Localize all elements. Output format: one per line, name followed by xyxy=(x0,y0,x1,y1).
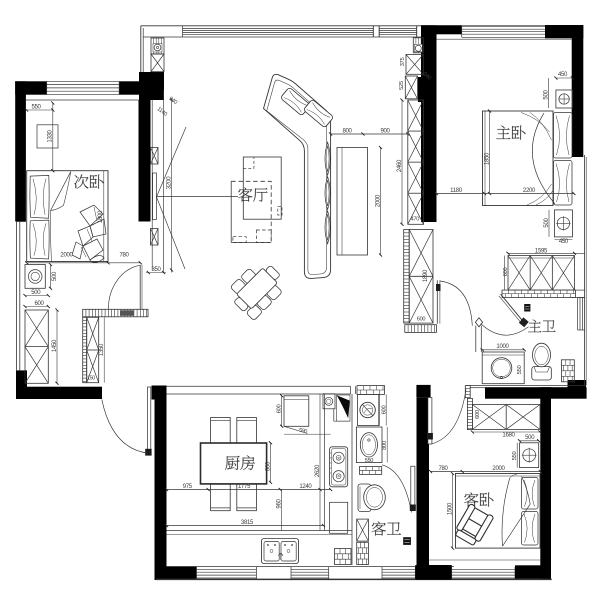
svg-text:1680: 1680 xyxy=(502,432,515,438)
svg-text:500: 500 xyxy=(544,217,550,227)
svg-text:150: 150 xyxy=(87,375,95,381)
svg-text:1240: 1240 xyxy=(299,484,312,490)
svg-text:1330: 1330 xyxy=(48,129,54,142)
svg-text:1500: 1500 xyxy=(447,502,453,515)
svg-text:3200: 3200 xyxy=(165,176,172,190)
svg-text:1180: 1180 xyxy=(450,188,463,194)
svg-text:600: 600 xyxy=(34,301,44,307)
svg-text:1000: 1000 xyxy=(496,344,509,350)
svg-text:1890: 1890 xyxy=(423,269,429,282)
svg-text:780: 780 xyxy=(119,253,129,259)
svg-text:2000: 2000 xyxy=(375,194,381,207)
svg-text:780: 780 xyxy=(438,466,448,472)
svg-text:500: 500 xyxy=(525,435,535,441)
svg-text:2620: 2620 xyxy=(315,464,321,477)
svg-text:3815: 3815 xyxy=(241,520,254,526)
svg-text:960: 960 xyxy=(276,498,282,508)
svg-text:600: 600 xyxy=(417,316,426,322)
svg-text:600: 600 xyxy=(277,405,283,414)
svg-text:800: 800 xyxy=(265,461,271,471)
svg-text:800: 800 xyxy=(342,128,352,134)
svg-text:375: 375 xyxy=(400,58,406,67)
svg-text:1775: 1775 xyxy=(238,484,251,490)
svg-text:600: 600 xyxy=(503,268,509,277)
svg-text:550: 550 xyxy=(512,452,518,461)
svg-text:450: 450 xyxy=(559,239,569,245)
svg-text:500: 500 xyxy=(52,271,58,281)
svg-text:550: 550 xyxy=(517,366,523,375)
svg-text:600: 600 xyxy=(475,410,481,419)
svg-text:2200: 2200 xyxy=(523,188,536,194)
svg-text:2460: 2460 xyxy=(397,159,403,172)
svg-text:975: 975 xyxy=(183,484,193,490)
svg-text:550: 550 xyxy=(365,458,374,464)
svg-text:1800: 1800 xyxy=(98,210,104,223)
svg-text:525: 525 xyxy=(399,81,405,90)
svg-text:1850: 1850 xyxy=(485,152,491,165)
svg-text:2000: 2000 xyxy=(492,466,505,472)
svg-text:900: 900 xyxy=(380,128,390,134)
svg-text:470: 470 xyxy=(411,216,420,222)
svg-text:1450: 1450 xyxy=(52,339,58,352)
svg-text:500: 500 xyxy=(31,290,41,296)
svg-text:350: 350 xyxy=(151,267,161,273)
svg-text:450: 450 xyxy=(558,72,568,78)
svg-text:2000: 2000 xyxy=(60,253,73,259)
svg-text:550: 550 xyxy=(31,104,41,110)
svg-text:500: 500 xyxy=(543,89,549,99)
